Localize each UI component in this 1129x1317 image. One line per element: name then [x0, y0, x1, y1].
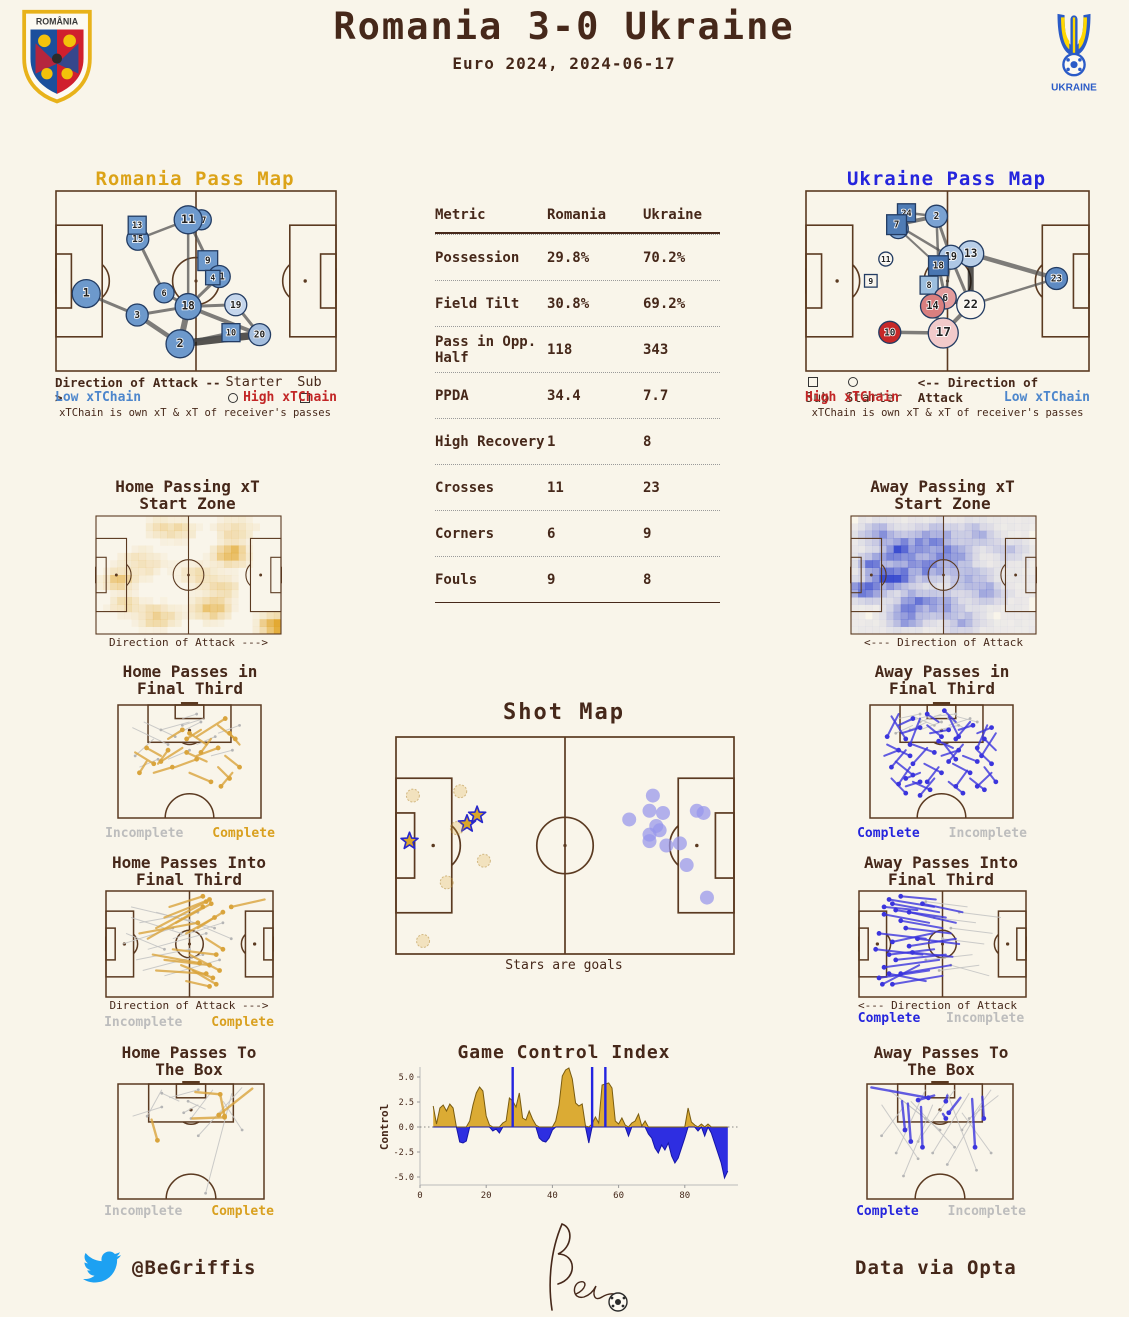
svg-text:13: 13 — [964, 247, 977, 260]
svg-text:19: 19 — [230, 300, 242, 311]
table-cell: 11 — [547, 480, 643, 496]
svg-text:1: 1 — [83, 286, 90, 300]
away-pass-map-title: Ukraine Pass Map — [805, 168, 1088, 190]
svg-text:9: 9 — [868, 277, 873, 286]
svg-text:15: 15 — [132, 234, 143, 245]
svg-text:22: 22 — [964, 297, 978, 311]
home-box-title: Home Passes ToThe Box — [93, 1044, 285, 1078]
table-row: Fouls98 — [435, 556, 720, 603]
table-row: Field Tilt30.8%69.2% — [435, 280, 720, 326]
infographic-root: ROMÂNIA Romania 3-0 Ukraine Euro 2024, 2… — [0, 0, 1129, 1317]
home-pass-map-pitch: 151317119214631920101821 — [55, 190, 337, 372]
romania-crest: ROMÂNIA — [18, 8, 96, 104]
ukraine-crest-label: UKRAINE — [1051, 83, 1097, 94]
gci-chart: 5.02.50.0-2.5-5.0020406080Control — [378, 1055, 753, 1207]
svg-text:9: 9 — [205, 256, 211, 267]
home-ft-title: Home Passes inFinal Third — [95, 663, 285, 697]
svg-text:40: 40 — [547, 1191, 558, 1201]
table-cell: Possession — [435, 250, 547, 266]
table-cell: 30.8% — [547, 296, 643, 312]
signature — [500, 1222, 670, 1317]
home-xt-heatmap — [95, 515, 282, 635]
svg-text:5.0: 5.0 — [399, 1073, 414, 1083]
svg-text:2: 2 — [934, 211, 940, 222]
away-into-pitch — [858, 890, 1027, 998]
table-header-cell: Ukraine — [643, 207, 720, 223]
svg-text:14: 14 — [926, 301, 938, 312]
table-cell: Crosses — [435, 480, 547, 496]
svg-text:11: 11 — [181, 212, 195, 226]
twitter-icon[interactable] — [82, 1248, 122, 1286]
svg-text:10: 10 — [884, 327, 896, 338]
away-xtchain-note: xTChain is own xT & xT of receiver's pas… — [795, 407, 1100, 419]
table-row: PPDA34.47.7 — [435, 372, 720, 418]
away-xt-title: Away Passing xTStart Zone — [850, 478, 1035, 512]
ukraine-crest: UKRAINE — [1038, 8, 1110, 100]
home-into-pitch — [105, 890, 274, 998]
away-box-legend: Complete Incomplete — [845, 1200, 1037, 1219]
home-xt-title: Home Passing xTStart Zone — [95, 478, 280, 512]
table-cell: 69.2% — [643, 296, 720, 312]
page-subtitle: Euro 2024, 2024-06-17 — [364, 54, 764, 73]
home-ft-legend: Incomplete Complete — [95, 822, 285, 841]
svg-text:6: 6 — [162, 289, 167, 299]
table-cell: Pass in Opp. Half — [435, 334, 547, 366]
table-cell: 118 — [547, 342, 643, 358]
away-high-xtchain-label: High xTChain — [805, 390, 899, 405]
svg-text:Control: Control — [378, 1104, 391, 1150]
table-cell: 7.7 — [643, 388, 720, 404]
away-into-title: Away Passes IntoFinal Third — [845, 854, 1037, 888]
table-cell: 29.8% — [547, 250, 643, 266]
table-header-cell: Romania — [547, 207, 643, 223]
home-ft-pitch — [117, 701, 262, 819]
table-row: Pass in Opp. Half118343 — [435, 326, 720, 372]
svg-text:20: 20 — [481, 1191, 492, 1201]
table-cell: 23 — [643, 480, 720, 496]
shot-map-pitch — [395, 736, 735, 955]
table-row: High Recovery18 — [435, 418, 720, 464]
home-pass-map-title: Romania Pass Map — [55, 168, 335, 190]
svg-text:0.0: 0.0 — [399, 1123, 414, 1133]
svg-text:4: 4 — [210, 274, 215, 283]
table-cell: Fouls — [435, 572, 547, 588]
away-into-legend: CompleteIncomplete — [845, 1011, 1037, 1026]
table-row: Possession29.8%70.2% — [435, 234, 720, 280]
away-box-title: Away Passes ToThe Box — [845, 1044, 1037, 1078]
table-row: Corners69 — [435, 510, 720, 556]
table-cell: High Recovery — [435, 434, 547, 450]
away-xt-caption: <--- Direction of Attack — [850, 636, 1037, 649]
away-ft-legend: Complete Incomplete — [847, 822, 1037, 841]
svg-text:2: 2 — [176, 336, 183, 350]
svg-text:60: 60 — [613, 1191, 624, 1201]
twitter-handle[interactable]: @BeGriffis — [132, 1257, 256, 1279]
sub-marker-icon — [808, 377, 818, 387]
svg-text:18: 18 — [182, 300, 195, 313]
away-ft-title: Away Passes inFinal Third — [847, 663, 1037, 697]
away-xt-heatmap — [850, 515, 1037, 635]
table-cell: 6 — [547, 526, 643, 542]
svg-text:23: 23 — [1051, 273, 1063, 284]
svg-text:3: 3 — [134, 310, 140, 321]
table-cell: 8 — [643, 434, 720, 450]
table-cell: 343 — [643, 342, 720, 358]
home-box-pitch — [117, 1080, 265, 1200]
table-header-row: MetricRomaniaUkraine — [435, 198, 720, 234]
away-box-pitch — [866, 1080, 1014, 1200]
table-cell: Corners — [435, 526, 547, 542]
away-low-xtchain-label: Low xTChain — [1004, 390, 1090, 405]
home-into-title: Home Passes IntoFinal Third — [93, 854, 285, 888]
svg-text:-5.0: -5.0 — [394, 1173, 414, 1183]
svg-text:8: 8 — [927, 281, 932, 291]
table-cell: 70.2% — [643, 250, 720, 266]
table-cell: 9 — [643, 526, 720, 542]
home-into-legend: Incomplete Complete — [93, 1011, 285, 1030]
svg-text:17: 17 — [936, 325, 951, 340]
svg-text:10: 10 — [226, 329, 236, 339]
svg-text:7: 7 — [894, 220, 900, 231]
svg-text:11: 11 — [881, 255, 891, 264]
data-credit: Data via Opta — [855, 1257, 1055, 1279]
svg-text:-2.5: -2.5 — [394, 1148, 414, 1158]
stats-table: MetricRomaniaUkrainePossession29.8%70.2%… — [435, 198, 720, 603]
table-cell: 34.4 — [547, 388, 643, 404]
away-ft-pitch — [869, 701, 1014, 819]
page-title: Romania 3-0 Ukraine — [264, 5, 864, 48]
table-cell: PPDA — [435, 388, 547, 404]
svg-text:80: 80 — [679, 1191, 690, 1201]
table-cell: Field Tilt — [435, 296, 547, 312]
home-xtchain-note: xTChain is own xT & xT of receiver's pas… — [45, 407, 345, 419]
romania-crest-label: ROMÂNIA — [36, 15, 79, 26]
table-cell: 8 — [643, 572, 720, 588]
svg-text:20: 20 — [254, 330, 266, 341]
svg-text:18: 18 — [933, 261, 945, 272]
table-cell: 1 — [547, 434, 643, 450]
away-pass-map-pitch: 241572119131918823622141710 — [805, 190, 1090, 372]
home-xt-caption: Direction of Attack ---> — [95, 636, 282, 649]
table-row: Crosses1123 — [435, 464, 720, 510]
starter-marker-icon — [848, 377, 858, 387]
svg-text:13: 13 — [132, 221, 142, 231]
home-high-xtchain-label: High xTChain — [243, 390, 337, 405]
table-header-cell: Metric — [435, 207, 547, 223]
shot-map-title: Shot Map — [414, 700, 714, 725]
home-low-xtchain-label: Low xTChain — [55, 390, 141, 405]
svg-text:0: 0 — [417, 1191, 422, 1201]
home-box-legend: Incomplete Complete — [93, 1200, 285, 1219]
shot-map-caption: Stars are goals — [414, 958, 714, 973]
svg-text:2.5: 2.5 — [399, 1098, 414, 1108]
table-cell: 9 — [547, 572, 643, 588]
